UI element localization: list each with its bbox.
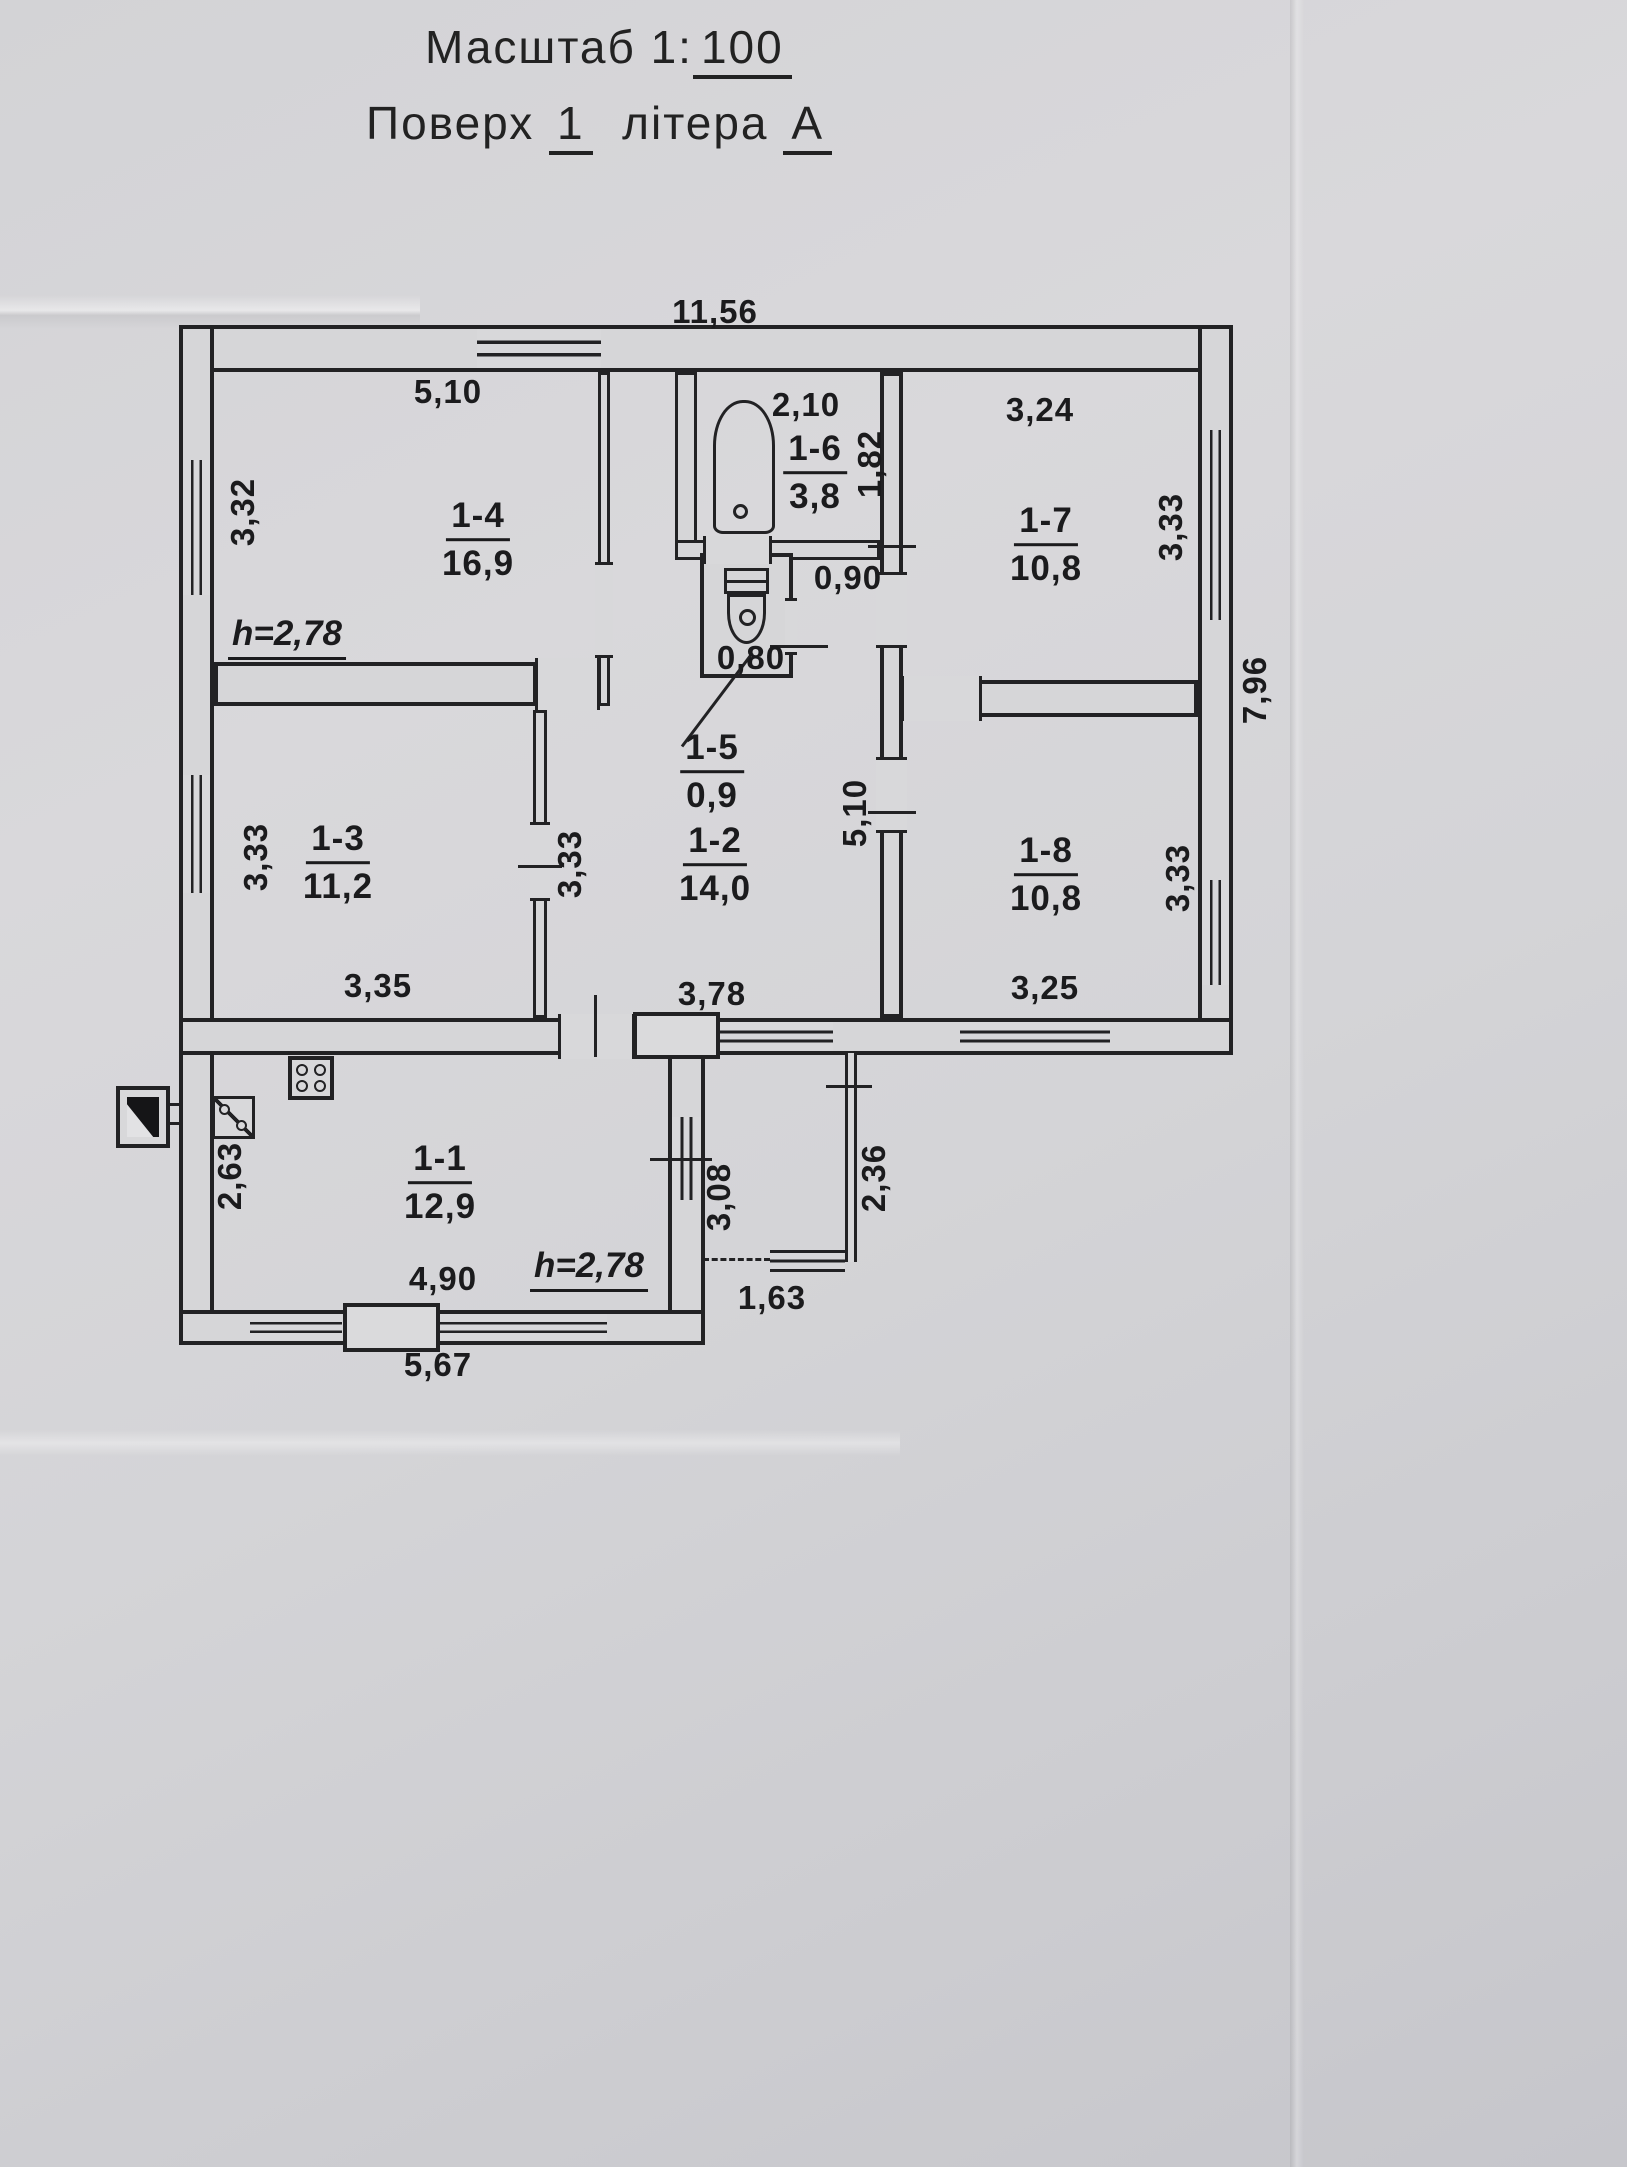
dim-tick bbox=[868, 811, 916, 814]
dim-kitchen-right: 3,08 bbox=[700, 1163, 738, 1231]
door-opening-room14-lobby bbox=[595, 562, 613, 658]
room-number: 1-1 bbox=[408, 1140, 472, 1184]
dim-bath-height: 1,82 bbox=[851, 430, 889, 498]
letter-label: літера bbox=[622, 97, 768, 149]
dim-corridor-width: 0,90 bbox=[814, 559, 882, 597]
room-number: 1-6 bbox=[783, 430, 847, 474]
ceiling-height-main: h=2,78 bbox=[228, 614, 346, 660]
room-area: 3,8 bbox=[783, 474, 847, 516]
window-bottom-hall-porch bbox=[720, 1018, 833, 1055]
letter-value: А bbox=[783, 97, 832, 155]
room-label-1-6: 1-6 3,8 bbox=[783, 430, 847, 516]
dim-room12-bottom: 3,78 bbox=[678, 975, 746, 1013]
room-label-1-2: 1-2 14,0 bbox=[679, 822, 751, 908]
room-number: 1-4 bbox=[446, 497, 510, 541]
room-number: 1-7 bbox=[1014, 502, 1078, 546]
bathtub-icon bbox=[713, 400, 775, 534]
room-label-1-4: 1-4 16,9 bbox=[442, 497, 514, 583]
floor-label: Поверх bbox=[366, 97, 534, 149]
dim-kitchen-left: 2,63 bbox=[211, 1142, 249, 1210]
entrance-door-hall-porch bbox=[633, 1012, 720, 1059]
plan-floor-title: Поверх 1 літера А bbox=[366, 96, 832, 150]
dim-room17-right: 3,33 bbox=[1152, 493, 1190, 561]
room-area: 11,2 bbox=[303, 864, 373, 906]
dim-room13-partition: 3,33 bbox=[551, 830, 589, 898]
room-number: 1-2 bbox=[683, 822, 747, 866]
dim-room14-left: 3,32 bbox=[224, 478, 262, 546]
wall-bathroom-left bbox=[675, 372, 697, 560]
room-number: 1-8 bbox=[1014, 832, 1078, 876]
room-area: 0,9 bbox=[680, 773, 744, 815]
window-left-room13 bbox=[179, 775, 214, 893]
chimney-icon bbox=[116, 1086, 170, 1148]
dim-porch-side: 2,36 bbox=[855, 1144, 893, 1212]
bathtub-drain-icon bbox=[733, 504, 748, 519]
dim-room14-top: 5,10 bbox=[414, 373, 482, 411]
room-area: 10,8 bbox=[1010, 546, 1082, 588]
porch-dashed-edge bbox=[703, 1258, 770, 1265]
room-label-1-1: 1-1 12,9 bbox=[404, 1140, 476, 1226]
wall-exterior-top bbox=[179, 325, 1233, 372]
window-right-room17 bbox=[1198, 430, 1233, 620]
room-area: 12,9 bbox=[404, 1184, 476, 1226]
dim-tick bbox=[868, 545, 916, 548]
dim-room13-bottom: 3,35 bbox=[344, 967, 412, 1005]
door-opening-room17 bbox=[901, 676, 982, 721]
chimney-flue-icon bbox=[127, 1097, 159, 1137]
room-label-1-7: 1-7 10,8 bbox=[1010, 502, 1082, 588]
toilet-tank-icon bbox=[724, 568, 769, 594]
entrance-door-kitchen bbox=[343, 1303, 440, 1352]
dim-room18-right: 3,33 bbox=[1159, 844, 1197, 912]
window-right-room18 bbox=[1198, 880, 1233, 985]
paper-crease bbox=[0, 295, 420, 329]
window-left-room14 bbox=[179, 460, 214, 595]
sink-icon bbox=[212, 1096, 255, 1139]
window-kitchen-bottom-1 bbox=[250, 1310, 342, 1345]
stove-icon bbox=[288, 1056, 334, 1100]
dim-porch-bottom: 1,63 bbox=[738, 1279, 806, 1317]
room-label-1-5: 1-5 0,9 bbox=[680, 729, 744, 815]
room-area: 10,8 bbox=[1010, 876, 1082, 918]
room-number: 1-3 bbox=[306, 820, 370, 864]
paper-crease bbox=[1290, 0, 1304, 2167]
window-top-room14 bbox=[477, 325, 601, 372]
dim-kitchen-bottom-outer: 5,67 bbox=[404, 1346, 472, 1384]
door-opening-room14 bbox=[535, 658, 600, 710]
dim-kitchen-bottom: 4,90 bbox=[409, 1260, 477, 1298]
scanned-floor-plan-page: Масштаб 1:100 Поверх 1 літера А bbox=[0, 0, 1627, 2167]
chimney-connector bbox=[166, 1103, 182, 1125]
scale-label: Масштаб 1: bbox=[425, 21, 693, 73]
dim-room18-bottom: 3,25 bbox=[1011, 969, 1079, 1007]
room-label-1-3: 1-3 11,2 bbox=[303, 820, 373, 906]
dim-building-right: 7,96 bbox=[1236, 656, 1274, 724]
dim-hall-wall: 5,10 bbox=[836, 779, 874, 847]
dim-bath-width: 2,10 bbox=[772, 386, 840, 424]
dim-room17-top: 3,24 bbox=[1006, 391, 1074, 429]
door-opening-room13 bbox=[530, 822, 550, 901]
room-area: 16,9 bbox=[442, 541, 514, 583]
dim-tick bbox=[826, 1085, 872, 1088]
plan-scale-title: Масштаб 1:100 bbox=[425, 20, 792, 74]
dim-building-top: 11,56 bbox=[672, 293, 758, 331]
ceiling-height-kitchen: h=2,78 bbox=[530, 1246, 648, 1292]
toilet-hole-icon bbox=[739, 609, 756, 626]
door-opening-hall-room18 bbox=[876, 757, 907, 833]
dim-tick bbox=[594, 995, 597, 1057]
dim-tick bbox=[650, 1158, 712, 1161]
room-area: 14,0 bbox=[679, 866, 751, 908]
scale-value: 100 bbox=[693, 21, 792, 79]
wall-room14-room13-divider bbox=[214, 662, 537, 706]
room-label-1-8: 1-8 10,8 bbox=[1010, 832, 1082, 918]
dim-room13-left: 3,33 bbox=[237, 823, 275, 891]
paper-crease bbox=[0, 1430, 900, 1456]
window-bottom-room18 bbox=[960, 1018, 1110, 1055]
porch-steps bbox=[770, 1250, 845, 1272]
floor-value: 1 bbox=[549, 97, 593, 155]
window-kitchen-bottom-2 bbox=[440, 1310, 607, 1345]
dim-toilet-width: 0,80 bbox=[717, 639, 785, 677]
room-number: 1-5 bbox=[680, 729, 744, 773]
door-opening-bathroom bbox=[703, 536, 772, 564]
